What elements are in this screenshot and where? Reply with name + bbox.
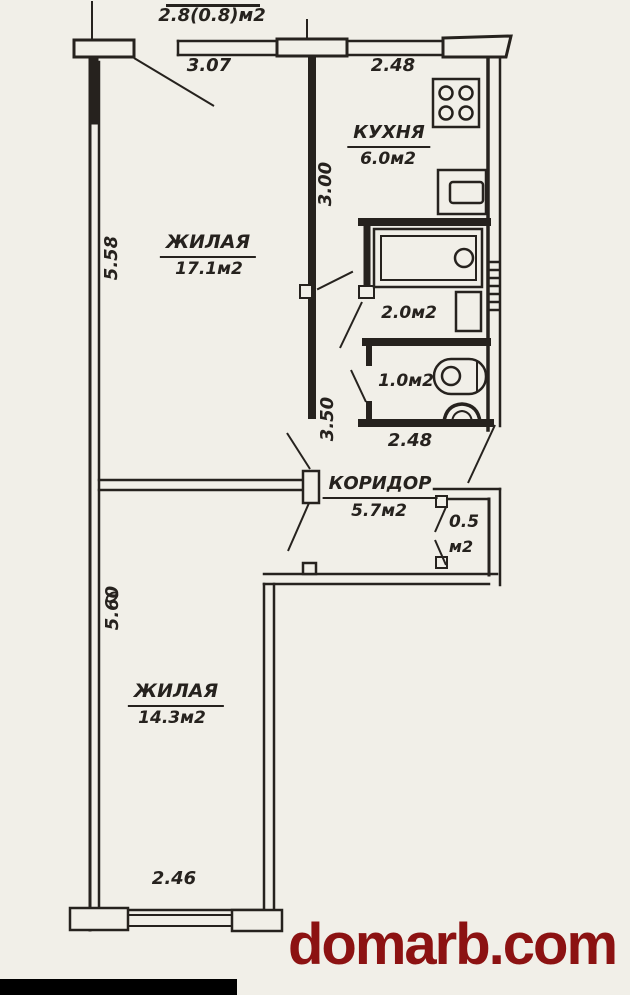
dim-top-window-right: 2.48 xyxy=(371,57,415,75)
room-area-living2: 14.3м2 xyxy=(138,710,206,727)
dim-left-upper: 5.58 xyxy=(103,236,121,280)
closet-jamb-top xyxy=(436,496,447,507)
room-label-corridor: КОРИДОР xyxy=(323,475,438,493)
room-area-closet-unit: м2 xyxy=(449,539,473,555)
watermark-text: domarb.com xyxy=(288,916,616,974)
dim-san-block-width: 2.48 xyxy=(388,432,432,450)
door-swing-living2 xyxy=(288,503,309,551)
window-top-left xyxy=(178,41,277,55)
room-area-bathroom: 2.0м2 xyxy=(381,305,437,322)
toilet-icon xyxy=(434,359,486,394)
washbasin-icon xyxy=(456,292,481,331)
stove-icon xyxy=(433,79,479,127)
wall-rooms-divider xyxy=(99,480,303,490)
corridor-door-pier xyxy=(303,471,319,503)
room-label-living1: ЖИЛАЯ xyxy=(160,233,256,252)
window-top-right xyxy=(347,41,443,55)
door-swing-living1 xyxy=(287,433,310,469)
dim-center-upper: 3.00 xyxy=(317,162,335,206)
leader-line xyxy=(318,272,352,289)
wall-living2-right xyxy=(264,584,274,930)
scanned-floorplan-page: БАЛКОН 2.8(0.8)м2 3.07 2.48 5.58 3.00 3.… xyxy=(0,0,630,995)
pier-top-right xyxy=(443,36,511,57)
wall-central-ledge xyxy=(300,285,312,298)
room-area-closet-value: 0.5 xyxy=(449,514,479,531)
door-swing-wc xyxy=(351,370,366,402)
door-swing-entrance xyxy=(468,425,495,483)
wall-corridor-bottom xyxy=(264,574,497,584)
bathtub-icon xyxy=(374,229,482,287)
vent-shaft-hatch xyxy=(488,262,500,310)
window-bottom xyxy=(128,915,232,926)
room-label-kitchen: КУХНЯ xyxy=(347,124,430,142)
room-label-living1-name: ЖИЛАЯ xyxy=(160,231,256,258)
walls xyxy=(90,2,500,930)
door-swing-bathroom xyxy=(340,302,362,348)
corridor-wall-notch xyxy=(303,563,316,574)
dim-center-lower: 3.50 xyxy=(319,397,337,441)
room-area-kitchen: 6.0м2 xyxy=(360,151,416,168)
room-label-kitchen-name: КУХНЯ xyxy=(347,122,430,148)
room-label-living2: ЖИЛАЯ xyxy=(128,682,224,701)
closet-bifold-door-top xyxy=(435,507,446,532)
dim-top-window-left: 3.07 xyxy=(187,57,231,75)
pier-bottom-left xyxy=(70,908,128,930)
room-area-living1: 17.1м2 xyxy=(175,261,243,278)
bath-door-jamb xyxy=(359,286,374,298)
pier-top-center xyxy=(277,39,347,56)
room-area-wc: 1.0м2 xyxy=(378,373,434,390)
floorplan-linework xyxy=(0,0,630,995)
pier-balcony-door xyxy=(74,40,134,57)
dim-bottom-window: 2.46 xyxy=(152,870,196,888)
bottom-black-bar xyxy=(0,979,237,995)
dim-left-lower: 5.60 xyxy=(104,586,122,630)
dim-balcony-area: 2.8(0.8)м2 xyxy=(158,7,265,25)
pier-bottom-right xyxy=(232,910,282,931)
kitchen-sink-icon xyxy=(438,170,486,214)
room-label-living2-name: ЖИЛАЯ xyxy=(128,680,224,707)
room-area-corridor: 5.7м2 xyxy=(351,503,407,520)
room-label-corridor-name: КОРИДОР xyxy=(323,473,438,499)
